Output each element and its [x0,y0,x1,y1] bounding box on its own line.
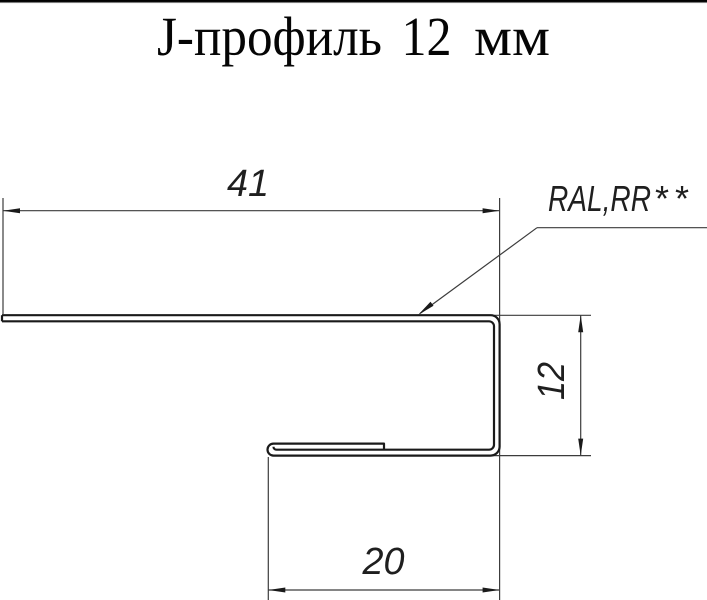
svg-text:41: 41 [227,163,269,205]
svg-text:мм: мм [474,6,550,67]
svg-text:12: 12 [531,362,573,400]
svg-text:*: * [674,178,689,219]
svg-text:20: 20 [362,541,405,583]
svg-text:RAL,RR: RAL,RR [548,178,651,219]
svg-text:J-профиль: J-профиль [157,6,382,67]
svg-text:*: * [654,178,669,219]
svg-text:12: 12 [402,6,452,67]
